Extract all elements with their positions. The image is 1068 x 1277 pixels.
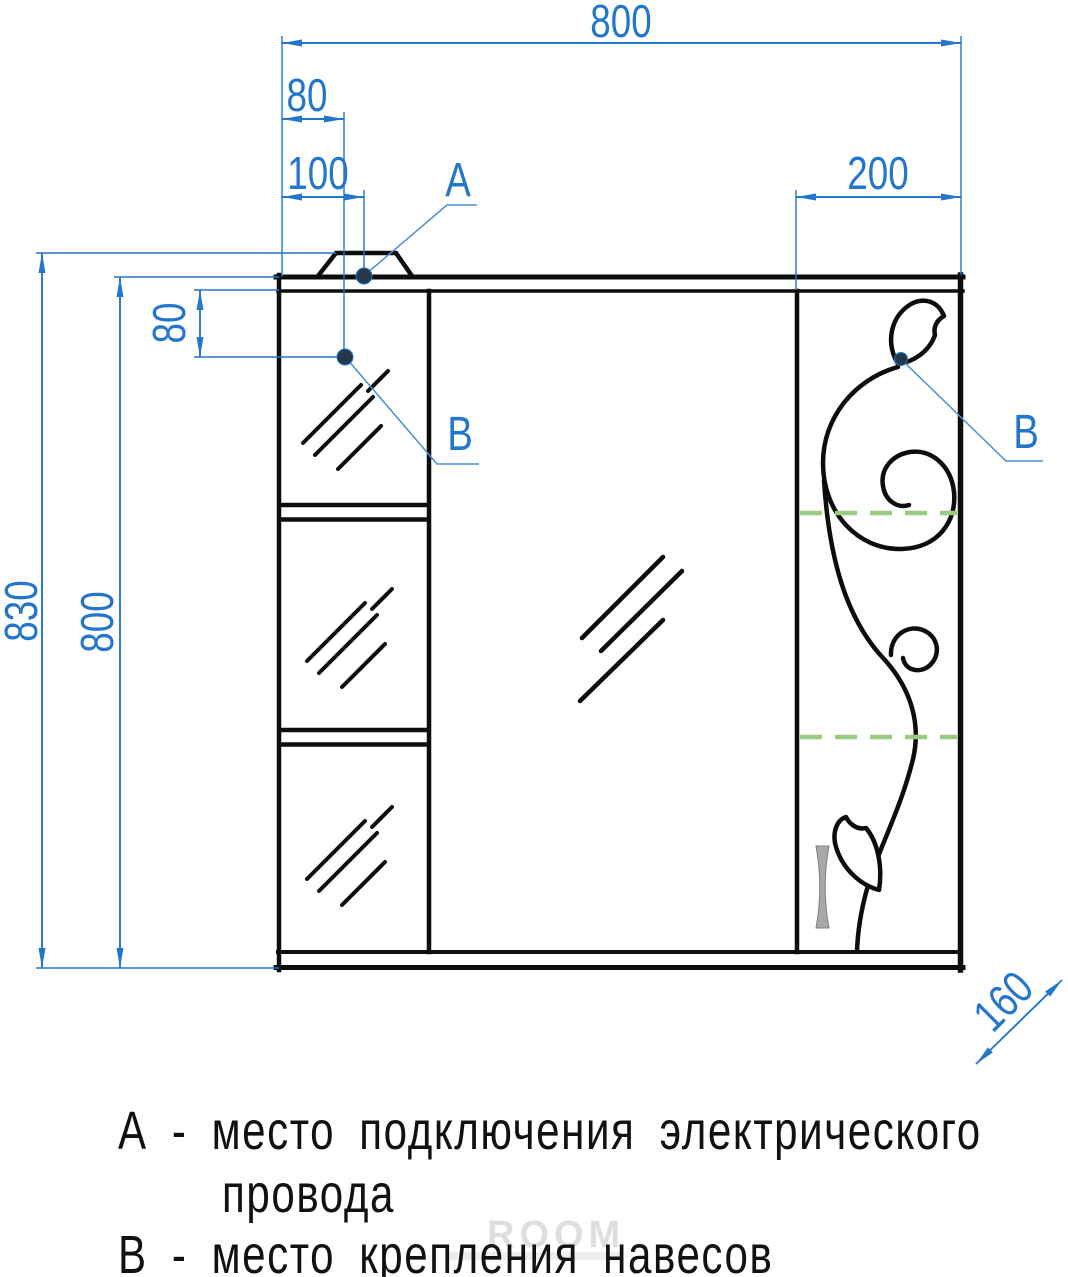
callout-label-a: А — [442, 157, 474, 205]
marker-point-b-right — [895, 353, 908, 366]
callout-label-b-left: В — [444, 411, 476, 459]
callout-label-b-right: В — [1010, 409, 1042, 457]
dim-label-overall-height: 830 — [0, 573, 44, 650]
dim-label-point-a-offset: 100 — [280, 150, 357, 196]
dim-label-lamp-offset: 80 — [281, 72, 332, 118]
legend-line-a-wrap: провода — [222, 1167, 395, 1221]
marker-point-a — [356, 268, 372, 284]
dimension-lines — [42, 43, 1062, 1064]
legend-line-a: А - место подключения электрического — [118, 1104, 982, 1158]
dim-label-door-width: 200 — [840, 150, 917, 196]
decor-vine — [823, 301, 954, 951]
dim-label-cabinet-height: 800 — [74, 584, 120, 661]
technical-drawing-page: 800 80 100 200 830 800 80 160 А В В ROOM… — [0, 0, 1068, 1277]
vine-loop-spiral — [823, 367, 954, 549]
mirror-hatch-left-bottom — [307, 807, 392, 905]
door-handle — [816, 846, 829, 928]
dim-label-point-b-drop: 80 — [146, 297, 192, 348]
mirror-hatch-center — [580, 557, 682, 701]
mirror-hatch-left-top — [303, 371, 388, 469]
marker-point-b-left — [337, 349, 353, 365]
dimension-extension-lines — [36, 36, 961, 968]
dim-label-overall-width: 800 — [583, 0, 660, 44]
point-markers — [337, 268, 908, 366]
vine-bottom-leaf — [834, 817, 880, 890]
left-shelf-column — [281, 505, 427, 745]
legend-line-b: В - место крепления навесов — [118, 1228, 773, 1277]
mirror-hatch-left-middle — [307, 589, 392, 687]
leader-line-a — [366, 205, 477, 274]
vine-middle-curl — [891, 628, 937, 670]
